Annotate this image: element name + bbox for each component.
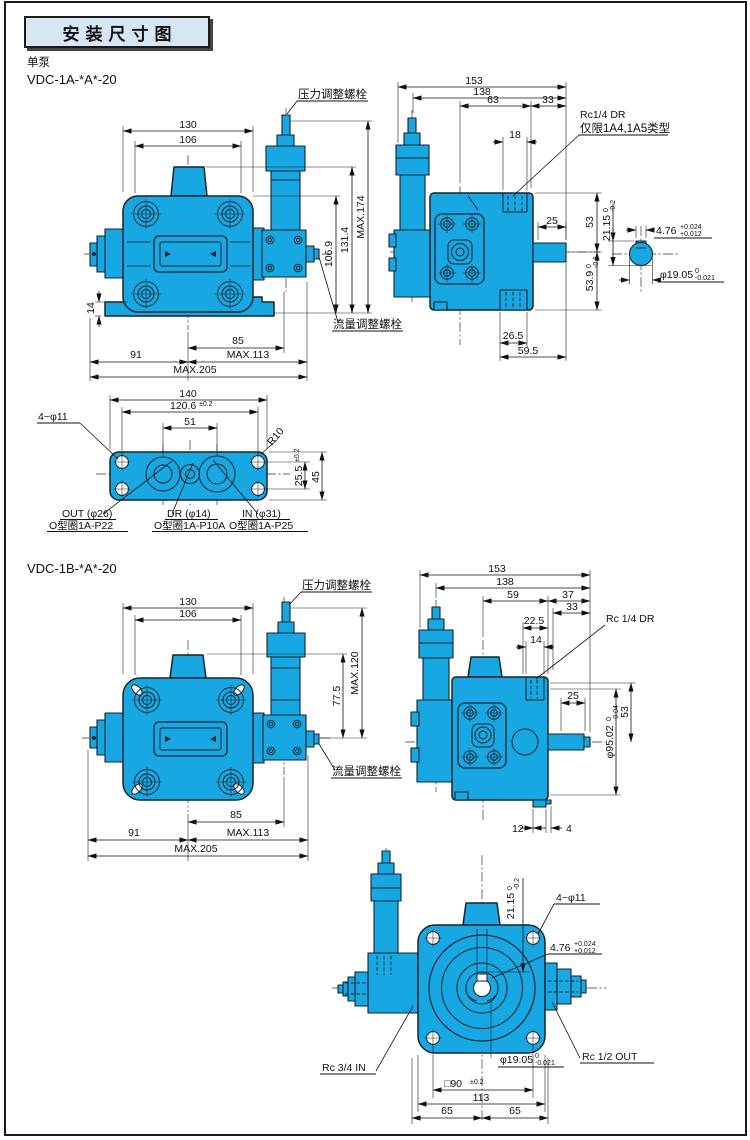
dim-1b-85: 85	[230, 809, 242, 821]
dim-1b-130: 130	[179, 596, 197, 608]
dim-1bs-153: 153	[488, 563, 506, 575]
svg-text:0: 0	[535, 1053, 539, 1060]
view-1b-front: 130 106 77.5 MAX.120 85 91 MAX.113 MAX.	[82, 578, 402, 861]
label-rc34-in: Rc 3/4 IN	[322, 1062, 366, 1074]
pump-kind-label: 单泵	[27, 56, 50, 69]
dim-1bs-4: 4	[566, 823, 572, 835]
dim-1a-85: 85	[232, 335, 244, 347]
dim-1bs-59: 59	[507, 589, 519, 601]
svg-text:φ95.02: φ95.02	[604, 725, 616, 758]
pressure-adjust-bolt-1b	[282, 602, 290, 622]
dim-1bs-25: 25	[567, 690, 579, 702]
dim-1bs-22-5: 22.5	[524, 615, 545, 627]
dim-fl-r10: R10	[265, 425, 287, 448]
label-out-oring: O型圈1A-P22	[49, 519, 113, 532]
svg-text:-0.2: -0.2	[610, 200, 617, 212]
label-pressure-bolt-1a: 压力调整螺栓	[298, 87, 367, 101]
dim-fl-45: 45	[310, 471, 322, 483]
flow-adjust-screw	[314, 249, 319, 259]
dim-1a-131-4: 131.4	[339, 227, 351, 253]
svg-text:±0.2: ±0.2	[294, 448, 301, 462]
pump-body-1b-side	[452, 677, 548, 800]
dim-1bs-33: 33	[566, 601, 578, 613]
svg-text:53.9: 53.9	[584, 271, 596, 292]
label-rc12-out: Rc 1/2 OUT	[582, 1051, 638, 1063]
dim-1bs-14: 14	[530, 634, 542, 646]
dim-1as-63: 63	[487, 94, 499, 106]
label-in-oring: O型圈1A-P25	[229, 519, 293, 532]
label-out-port: OUT (φ26)	[62, 508, 112, 520]
dim-1as-59-5: 59.5	[518, 345, 539, 357]
dim-fl-51: 51	[184, 416, 196, 428]
dim-b3-4-76: 4.76	[550, 942, 571, 954]
dim-1bs-37: 37	[562, 589, 574, 601]
dim-1as-26-5: 26.5	[503, 330, 524, 342]
view-1b-bottom: 21.15 0 -0.2 4~φ11 4.76 +0.024 +0.012 φ1…	[320, 848, 654, 1124]
svg-text:21.15: 21.15	[601, 215, 613, 241]
shaft-1b-side	[548, 734, 584, 750]
dim-1a-106-9: 106.9	[323, 241, 335, 267]
label-rc14-dr: Rc1/4 DR	[580, 109, 626, 121]
dim-1b-max113: MAX.113	[227, 827, 270, 839]
svg-text:-0.04: -0.04	[613, 705, 620, 721]
outlet-body	[545, 963, 557, 1010]
dim-b3-65r: 65	[509, 1105, 521, 1117]
view-1a-side: 153 138 63 33 18 25 53 53.9 0	[389, 75, 670, 361]
page: 安装尺寸图 单泵 VDC-1A-*A*-20 VDC-1B-*A*-20	[0, 0, 750, 1140]
label-b3-4holes: 4~φ11	[556, 892, 586, 904]
shaft-hole	[474, 980, 491, 997]
dim-fl-25-5: 25.5 ±0.2	[293, 448, 305, 486]
pump-body	[123, 196, 253, 312]
svg-text:0: 0	[603, 208, 610, 212]
label-flow-bolt-1b: 流量调整螺栓	[332, 764, 401, 778]
dim-1bs-12: 12	[512, 823, 524, 835]
dim-1as-33: 33	[542, 94, 554, 106]
label-rc14-note: 仅限1A4,1A5类型	[580, 121, 670, 135]
drawing-canvas: 单泵 VDC-1A-*A*-20 VDC-1B-*A*-20	[0, 0, 750, 1140]
dim-1b-91: 91	[128, 827, 140, 839]
dim-1as-25: 25	[546, 215, 558, 227]
dim-1as-18: 18	[509, 129, 521, 141]
svg-text:-0.1: -0.1	[593, 256, 600, 268]
dim-1bs-138: 138	[496, 576, 514, 588]
dim-shaft-19-05: φ19.05	[660, 269, 693, 281]
view-1a-front: 130 106 106.9 131.4 MAX.174 14	[84, 87, 403, 381]
model-b-label: VDC-1B-*A*-20	[27, 561, 117, 576]
svg-text:+0.024: +0.024	[680, 224, 702, 231]
mounting-face	[110, 452, 267, 500]
svg-text:+0.012: +0.012	[680, 231, 702, 238]
dim-1b-77-5: 77.5	[331, 686, 343, 707]
svg-text:+0.024: +0.024	[574, 941, 596, 948]
svg-text:25.5: 25.5	[293, 466, 305, 487]
dim-shaft-4-76: 4.76	[656, 225, 677, 237]
dim-1a-106: 106	[179, 134, 197, 146]
dim-1b-max205: MAX.205	[174, 843, 217, 855]
dim-1as-53-9: 53.9 0 -0.1	[584, 256, 600, 291]
dim-1a-91: 91	[130, 349, 142, 361]
svg-text:-0.021: -0.021	[695, 275, 715, 282]
dim-fl-120-6: 120.6	[170, 400, 196, 412]
label-pressure-bolt-1b: 压力调整螺栓	[302, 578, 371, 592]
svg-text:0: 0	[586, 264, 593, 268]
pressure-adjust-bolt	[282, 115, 290, 136]
dim-fl-140: 140	[179, 388, 197, 400]
label-fl-4holes: 4~φ11	[38, 411, 68, 423]
svg-text:±0.2: ±0.2	[470, 1079, 484, 1086]
label-in-port: IN (φ31)	[242, 508, 281, 520]
dim-1bs-95: φ95.02 0 -0.04	[604, 705, 620, 759]
svg-text:0: 0	[507, 886, 514, 890]
dim-b3-19-05: φ19.05	[500, 1054, 533, 1066]
flow-adjust-block	[262, 230, 306, 277]
inlet-body	[368, 953, 420, 1013]
shaft-section	[630, 243, 653, 266]
dim-b3-sq90: □90	[444, 1078, 462, 1090]
model-a-label: VDC-1A-*A*-20	[27, 72, 117, 87]
label-rc14-dr-1b: Rc 1/4 DR	[606, 613, 655, 625]
dim-b3-65l: 65	[441, 1105, 453, 1117]
shaft-detail: 21.15 0 -0.2 4.76 +0.024 +0.012 φ19.05 0…	[601, 200, 724, 292]
label-dr-port: DR (φ14)	[167, 508, 211, 520]
dim-b3-113: 113	[473, 1092, 490, 1104]
svg-text:21.15: 21.15	[505, 893, 517, 919]
pump-top-cap	[171, 167, 207, 196]
dim-1a-max205: MAX.205	[173, 364, 216, 376]
dim-1a-max113: MAX.113	[227, 349, 270, 361]
svg-text:±0.2: ±0.2	[199, 401, 213, 408]
svg-text:0: 0	[606, 717, 613, 721]
dim-1b-106: 106	[179, 608, 197, 620]
dim-1a-max174: MAX.174	[355, 195, 367, 238]
shaft-side	[533, 243, 566, 262]
dim-1a-14: 14	[85, 302, 97, 314]
dim-1b-max120: MAX.120	[349, 651, 361, 694]
view-1a-flange: 140 120.6 ±0.2 51 R10 4~φ11 25.5 ±0.2	[37, 388, 327, 532]
dim-1as-53: 53	[584, 216, 596, 228]
dim-b3-21-15: 21.15 0 -0.2	[505, 878, 521, 919]
label-dr-oring: O型圈1A-P10A	[154, 519, 225, 532]
dim-shaft-21-15: 21.15 0 -0.2	[601, 200, 617, 241]
dim-1a-130: 130	[179, 119, 197, 131]
shaft-bearing	[105, 229, 124, 278]
label-flow-bolt-1a: 流量调整螺栓	[333, 317, 402, 331]
svg-text:0: 0	[695, 268, 699, 275]
svg-text:-0.2: -0.2	[514, 878, 521, 890]
dim-1bs-53: 53	[619, 706, 631, 718]
view-1b-side: 153 138 59 37 33 22.5 14 Rc 1/4 DR 25	[405, 563, 655, 835]
